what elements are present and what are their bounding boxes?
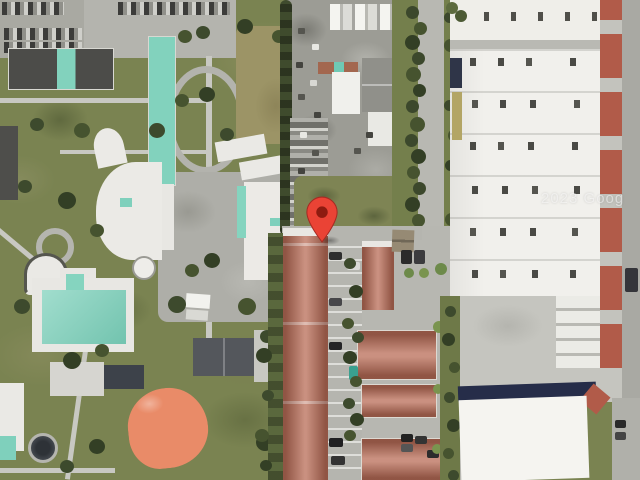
white-building (459, 396, 590, 480)
scattered-debris (298, 28, 305, 34)
parked-car (329, 342, 342, 350)
location-pin-icon[interactable] (305, 196, 339, 244)
parked-car (329, 438, 343, 447)
storage-strip (452, 92, 462, 140)
roof-vents (470, 58, 476, 66)
parked-car (329, 298, 342, 306)
round-pool (28, 433, 58, 463)
parked-car (401, 250, 412, 264)
sport-court-dark (193, 338, 255, 376)
dumpsters (450, 58, 462, 88)
verge-trees (445, 306, 456, 317)
parked-truck (625, 268, 638, 292)
townhouse-roof (361, 384, 437, 418)
teal-roof-strip (120, 198, 132, 207)
parked-cars-row (4, 28, 82, 40)
sport-court (50, 362, 104, 396)
townhouse-roof (283, 236, 328, 480)
townhouse-roof (357, 330, 437, 380)
trailer-row (330, 4, 392, 30)
street (418, 0, 446, 244)
teal-roof-strip (237, 186, 246, 238)
parked-car (401, 434, 413, 442)
parked-car (401, 444, 413, 452)
brown-roof-house (392, 230, 415, 253)
hedge-row (268, 233, 284, 480)
parked-car (427, 450, 439, 458)
parked-car (331, 456, 345, 465)
parked-truck (186, 293, 211, 309)
satellite-map-canvas[interactable]: 2023 Goog (0, 0, 640, 480)
parked-car (615, 432, 626, 440)
warehouse-roof (450, 49, 622, 301)
dark-roof-building (0, 126, 18, 200)
grass-verge (392, 0, 420, 252)
parked-car-teal (349, 366, 358, 380)
parked-car (414, 250, 425, 264)
teal-roof-strip (66, 274, 84, 290)
curved-white-building (96, 162, 162, 260)
campus-trees (30, 118, 44, 131)
gym-teal-roof (42, 290, 126, 344)
pool (0, 436, 16, 460)
parked-car (415, 436, 427, 444)
dark-roof-building (8, 48, 114, 90)
walking-path (0, 468, 115, 473)
parked-car (329, 252, 342, 260)
map-attribution-watermark: 2023 Goog (541, 190, 624, 207)
parked-cars-row (2, 2, 64, 15)
townhouse-roof (362, 247, 394, 310)
palm-trees (404, 268, 414, 278)
teal-container (334, 62, 344, 72)
verge-trees (446, 2, 458, 14)
parked-cars-row (118, 2, 230, 15)
sport-court-dark (104, 365, 144, 389)
parked-truck (186, 309, 209, 321)
white-building (332, 72, 360, 114)
street-tree-row (406, 6, 419, 19)
loading-dock-edge (600, 0, 622, 368)
parked-car (615, 420, 626, 428)
water-tank (132, 256, 156, 280)
courtyard-trees (344, 258, 356, 269)
